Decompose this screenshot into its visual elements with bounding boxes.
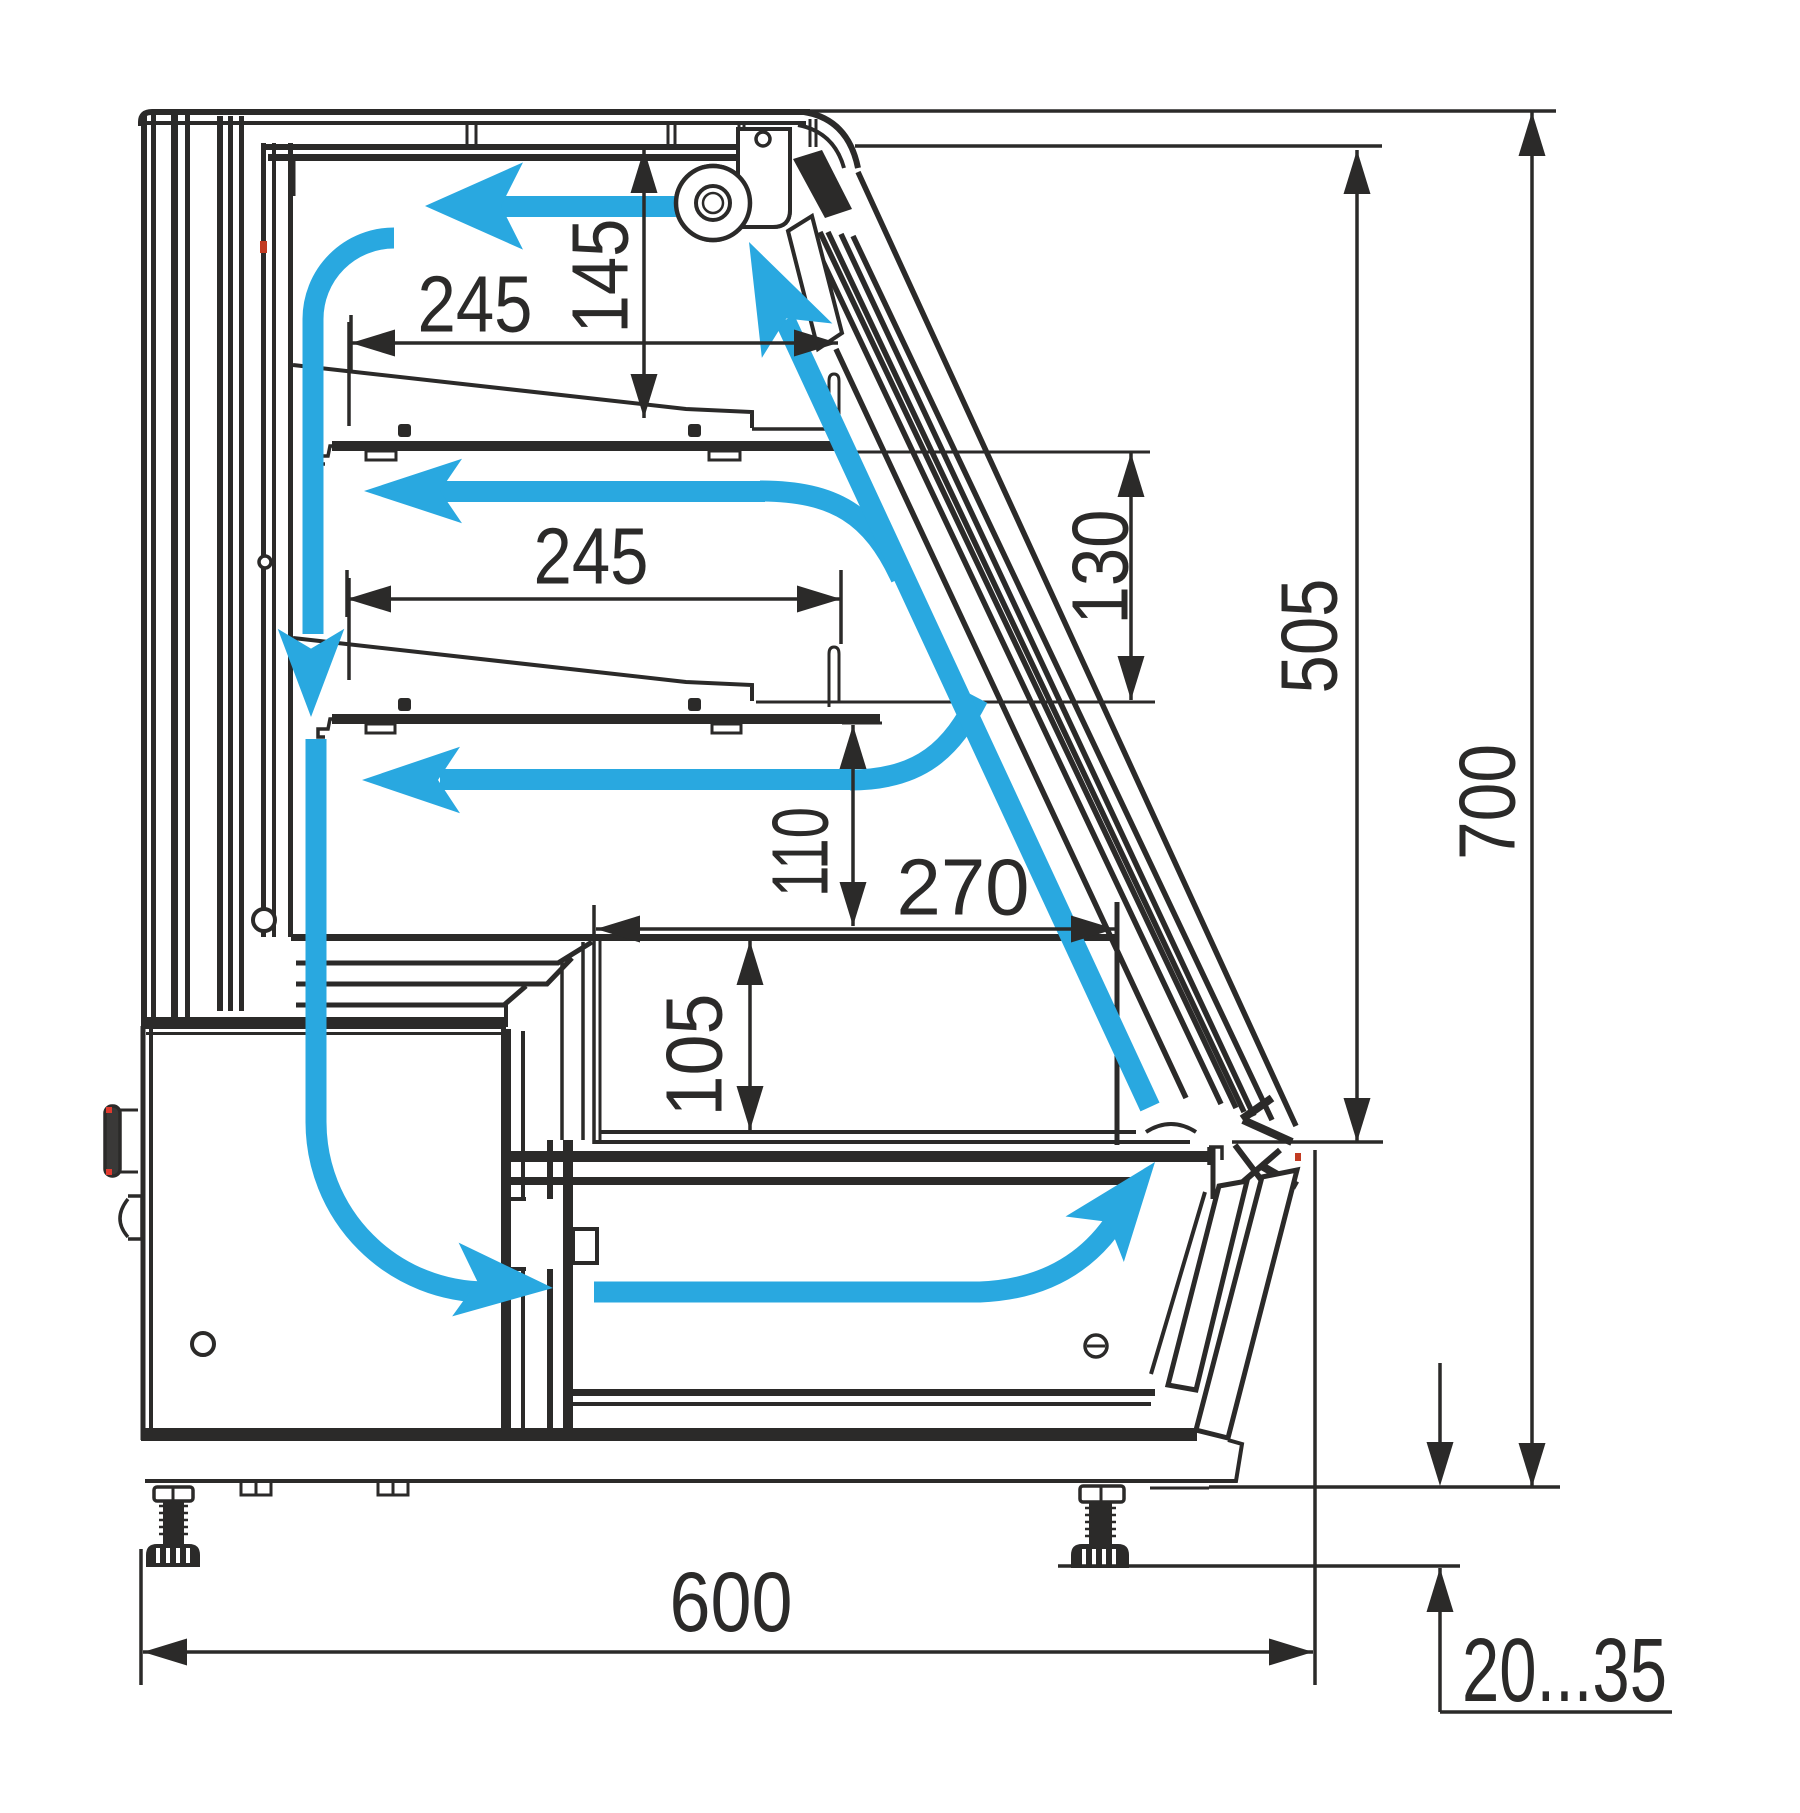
svg-text:505: 505: [1265, 579, 1354, 694]
svg-text:245: 245: [534, 512, 649, 601]
svg-text:700: 700: [1443, 744, 1532, 860]
svg-text:105: 105: [650, 994, 739, 1117]
svg-text:270: 270: [897, 843, 1030, 932]
svg-text:20...35: 20...35: [1462, 1621, 1667, 1721]
svg-text:145: 145: [556, 219, 645, 334]
svg-text:245: 245: [418, 260, 533, 349]
svg-text:600: 600: [670, 1555, 793, 1649]
svg-text:130: 130: [1056, 510, 1145, 625]
svg-text:110: 110: [756, 807, 845, 897]
